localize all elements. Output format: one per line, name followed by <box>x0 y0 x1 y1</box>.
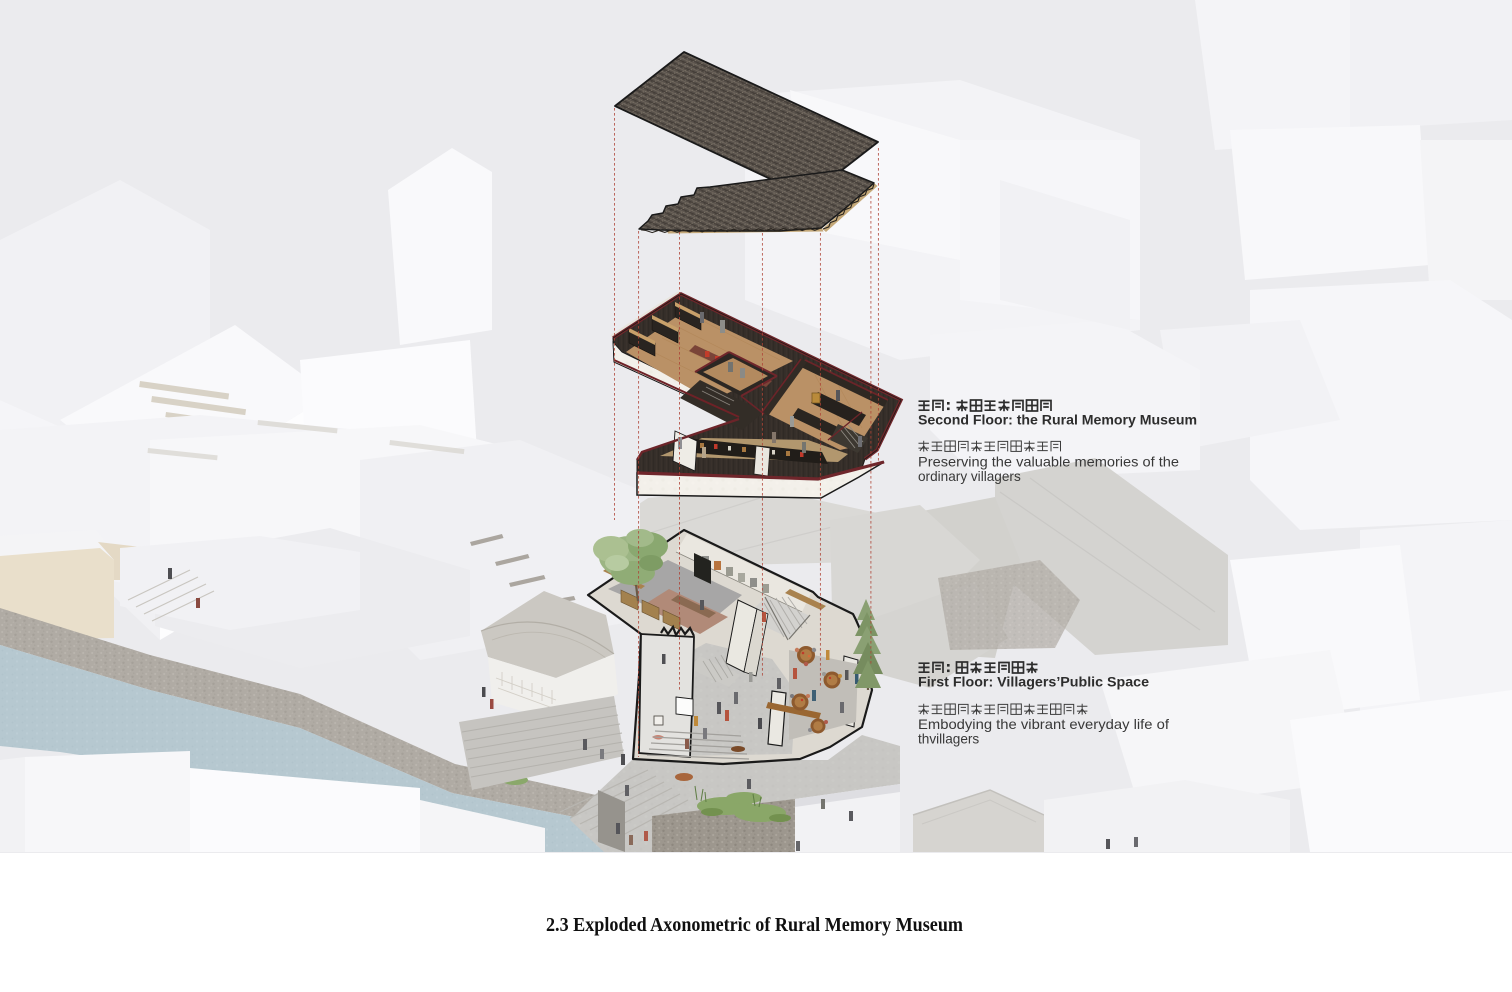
svg-text:Embodying the vibrant everyday: Embodying the vibrant everyday life of <box>918 717 1169 732</box>
svg-text:First Floor: Villagers’Public: First Floor: Villagers’Public Space <box>918 675 1149 691</box>
svg-text:Preserving the valuable memori: Preserving the valuable memories of the <box>918 455 1179 470</box>
svg-text:ordinary villagers: ordinary villagers <box>918 469 1021 484</box>
svg-text:Second Floor: the Rural Memory: Second Floor: the Rural Memory Museum <box>918 413 1197 429</box>
svg-text:2.3 Exploded Axonometric of Ru: 2.3 Exploded Axonometric of Rural Memory… <box>546 914 963 936</box>
svg-text:thvillagers: thvillagers <box>918 732 979 747</box>
